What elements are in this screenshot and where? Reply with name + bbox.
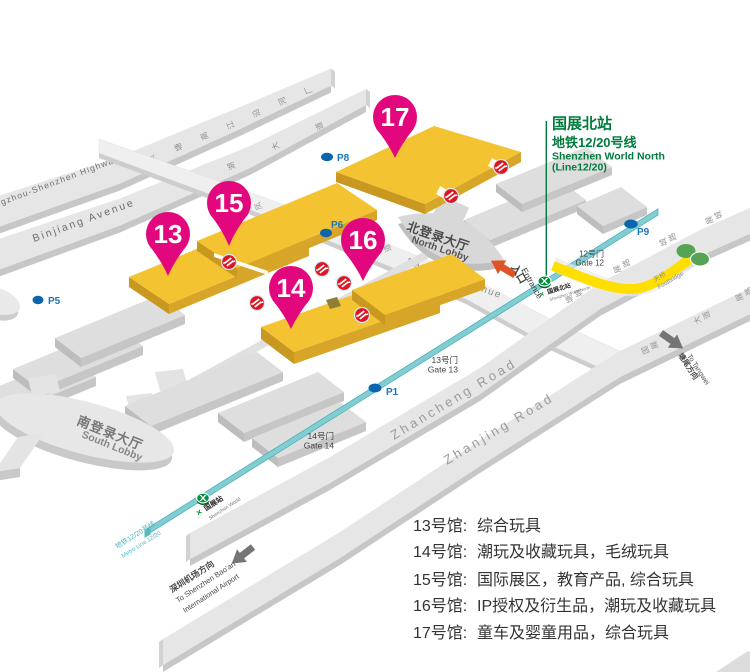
svg-text:17号馆:: 17号馆: <box>413 624 467 642</box>
svg-text:13号馆:: 13号馆: <box>413 517 467 535</box>
svg-text:国际展区，教育产品, 综合玩具: 国际展区，教育产品, 综合玩具 <box>477 571 694 589</box>
svg-text:童车及婴童用品，综合玩具: 童车及婴童用品，综合玩具 <box>477 623 669 642</box>
svg-text:13号门: 13号门 <box>432 355 458 365</box>
svg-text:16号馆:: 16号馆: <box>413 597 467 615</box>
svg-text:17: 17 <box>381 102 410 132</box>
svg-text:IP授权及衍生品，潮玩及收藏玩具: IP授权及衍生品，潮玩及收藏玩具 <box>477 597 716 615</box>
svg-text:P1: P1 <box>386 387 399 398</box>
svg-text:Gate 13: Gate 13 <box>428 365 459 375</box>
svg-text:国展北站: 国展北站 <box>552 115 612 133</box>
svg-text:15号馆:: 15号馆: <box>413 571 467 589</box>
svg-text:(Line12/20): (Line12/20) <box>552 162 607 174</box>
svg-text:P8: P8 <box>337 153 350 164</box>
svg-text:13: 13 <box>154 219 183 249</box>
svg-text:综合玩具: 综合玩具 <box>477 517 541 535</box>
svg-text:16: 16 <box>349 225 378 255</box>
svg-text:14: 14 <box>277 273 306 303</box>
svg-text:Gate 12: Gate 12 <box>576 259 605 268</box>
svg-text:14号馆:: 14号馆: <box>413 543 467 561</box>
svg-text:15: 15 <box>215 188 244 218</box>
svg-text:P9: P9 <box>637 227 650 238</box>
svg-text:Gate 14: Gate 14 <box>304 441 335 451</box>
svg-text:14号门: 14号门 <box>308 431 334 441</box>
svg-text:12号门: 12号门 <box>579 249 604 259</box>
svg-text:地铁12/20号线: 地铁12/20号线 <box>552 135 637 150</box>
svg-text:P6: P6 <box>331 220 344 231</box>
svg-text:潮玩及收藏玩具，毛绒玩具: 潮玩及收藏玩具，毛绒玩具 <box>477 543 669 561</box>
svg-text:P5: P5 <box>48 296 61 307</box>
